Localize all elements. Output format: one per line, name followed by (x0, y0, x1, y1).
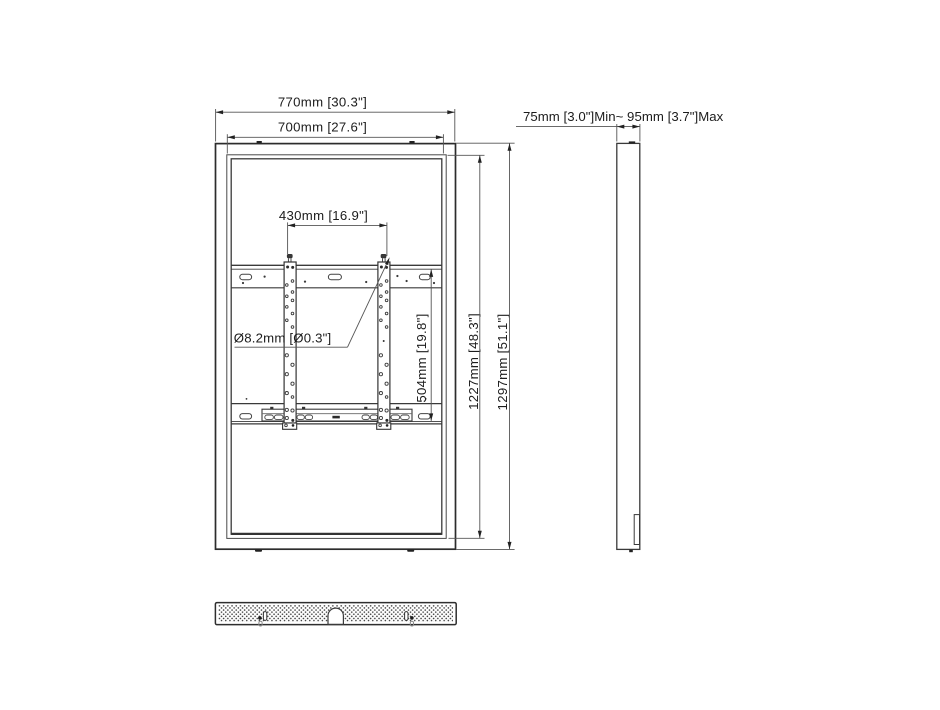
svg-text:Ø8.2mm [Ø0.3"]: Ø8.2mm [Ø0.3"] (234, 331, 332, 346)
svg-text:430mm [16.9"]: 430mm [16.9"] (279, 208, 368, 223)
svg-text:770mm [30.3"]: 770mm [30.3"] (278, 95, 367, 110)
svg-text:1297mm [51.1"]: 1297mm [51.1"] (495, 314, 510, 411)
svg-text:75mm [3.0"]Min~ 95mm [3.7"]Max: 75mm [3.0"]Min~ 95mm [3.7"]Max (523, 109, 724, 124)
svg-text:1227mm [48.3"]: 1227mm [48.3"] (466, 313, 481, 410)
svg-text:504mm [19.8"]: 504mm [19.8"] (414, 313, 429, 402)
svg-text:700mm [27.6"]: 700mm [27.6"] (278, 120, 367, 135)
